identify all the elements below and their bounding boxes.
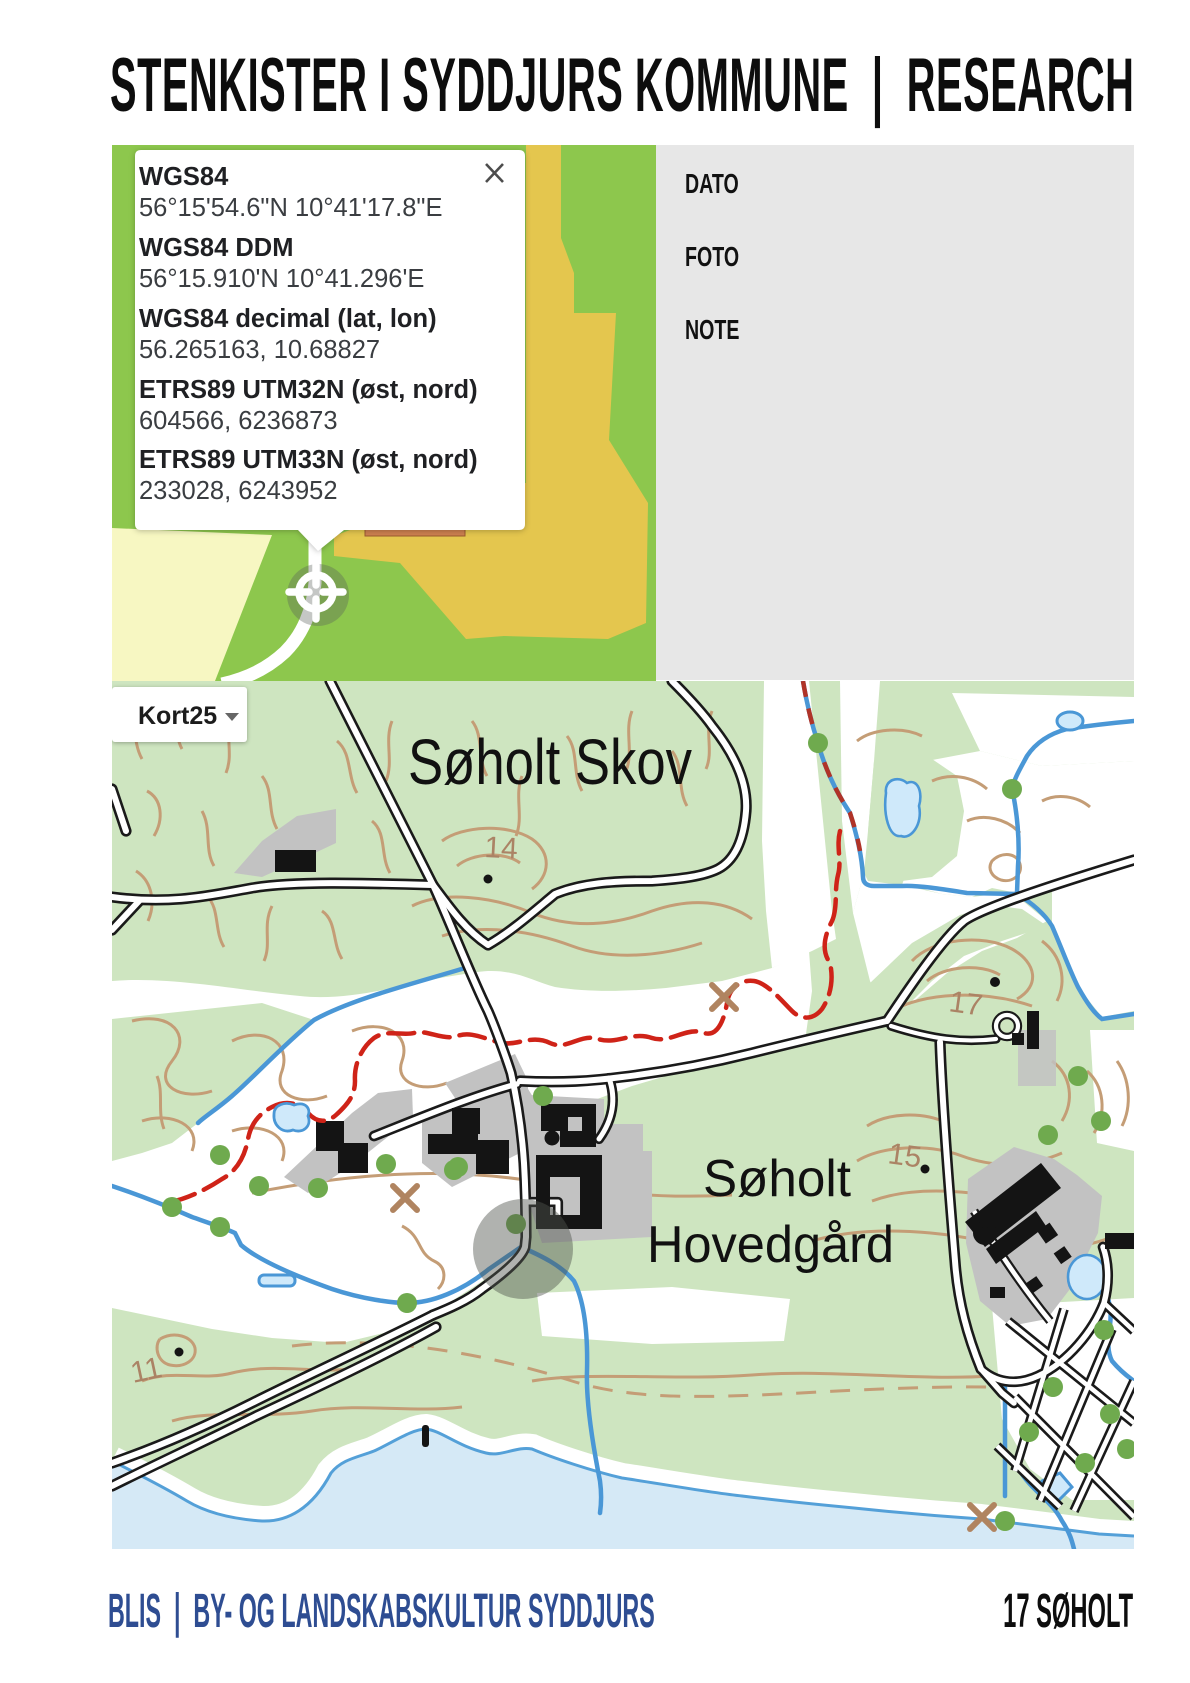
svg-text:56°15.910'N 10°41.296'E: 56°15.910'N 10°41.296'E [139, 265, 424, 293]
svg-text:17: 17 [947, 985, 985, 1022]
svg-text:Hovedgård: Hovedgård [647, 1216, 894, 1274]
svg-text:WGS84: WGS84 [139, 163, 229, 191]
svg-text:604566, 6236873: 604566, 6236873 [139, 407, 338, 435]
svg-text:Søholt: Søholt [703, 1150, 852, 1208]
svg-text:WGS84 DDM: WGS84 DDM [139, 234, 293, 262]
svg-text:WGS84 decimal (lat, lon): WGS84 decimal (lat, lon) [139, 305, 437, 333]
svg-text:Søholt Skov: Søholt Skov [408, 726, 692, 798]
svg-text:56.265163, 10.68827: 56.265163, 10.68827 [139, 336, 380, 364]
svg-text:15: 15 [886, 1137, 924, 1174]
svg-text:56°15'54.6"N 10°41'17.8"E: 56°15'54.6"N 10°41'17.8"E [139, 194, 442, 222]
svg-text:233028, 6243952: 233028, 6243952 [139, 477, 338, 505]
svg-text:14: 14 [484, 831, 519, 866]
svg-text:ETRS89 UTM33N (øst, nord): ETRS89 UTM33N (øst, nord) [139, 446, 478, 474]
svg-text:ETRS89 UTM32N (øst, nord): ETRS89 UTM32N (øst, nord) [139, 376, 478, 404]
svg-text:Kort25: Kort25 [138, 702, 217, 730]
